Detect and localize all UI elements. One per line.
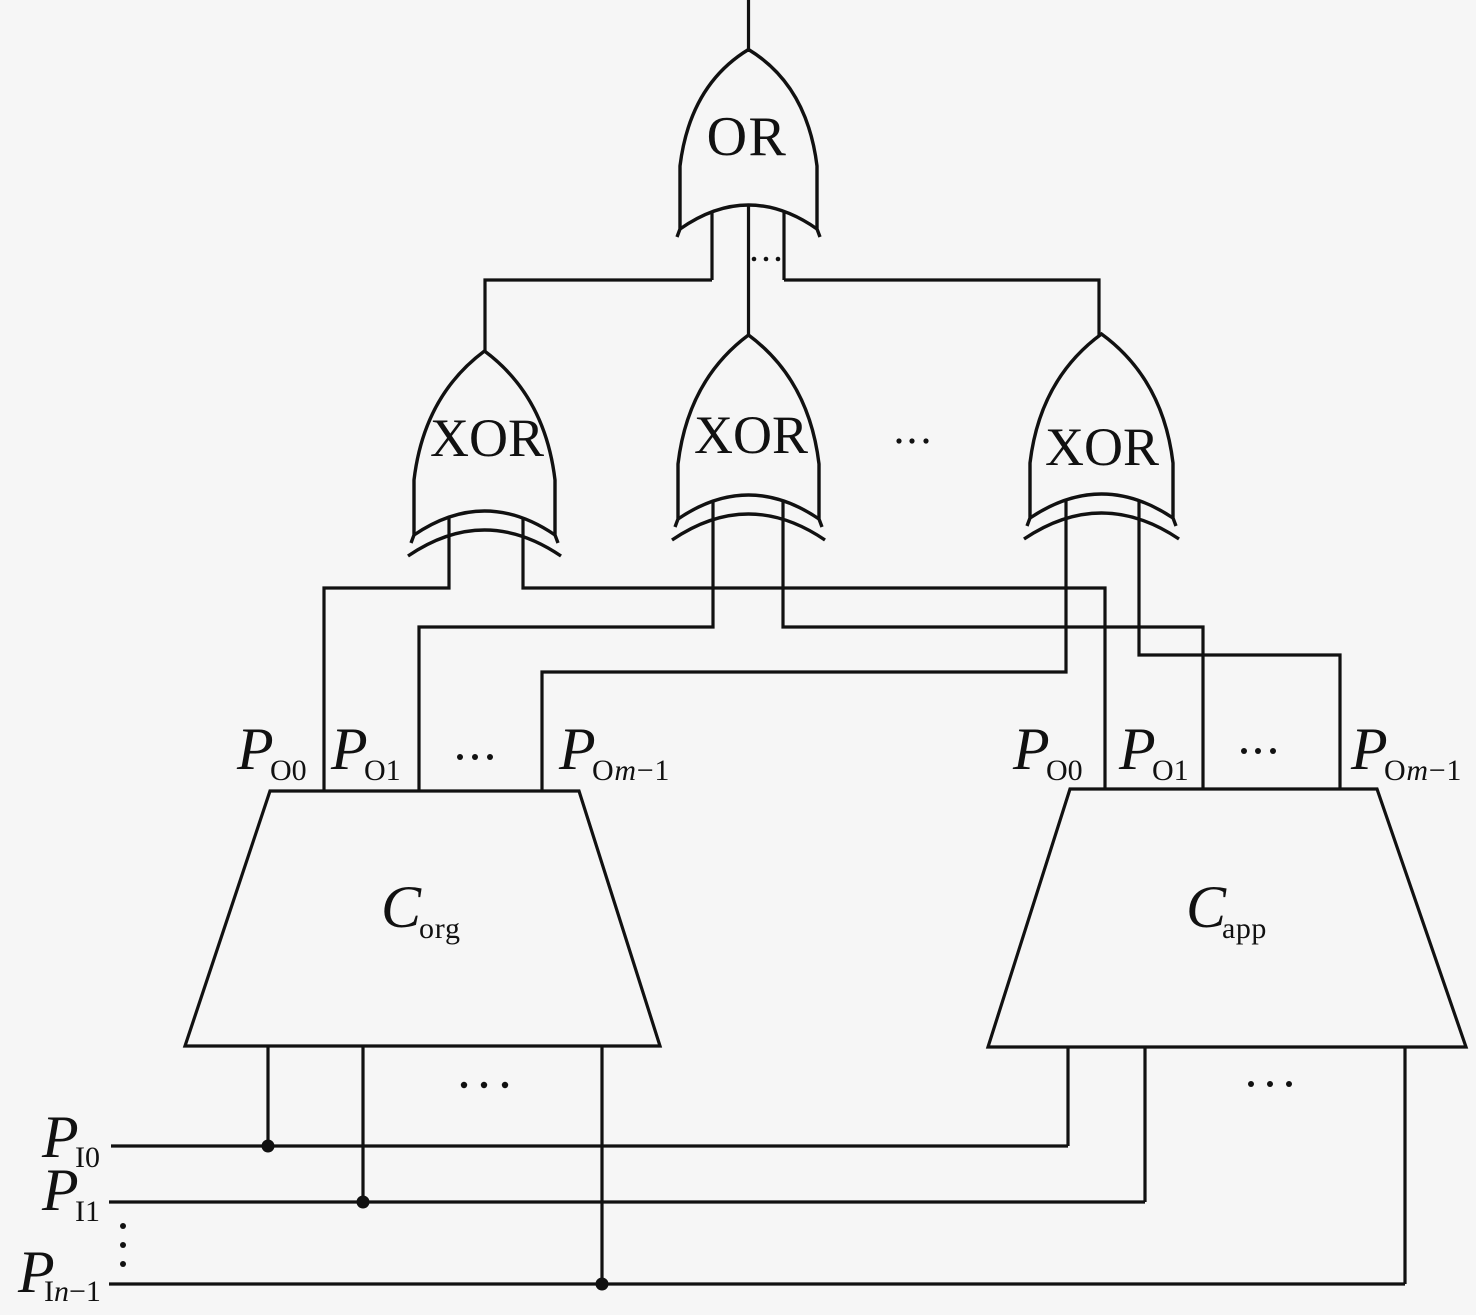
svg-text:O1: O1: [1152, 754, 1189, 787]
svg-text:O0: O0: [270, 754, 307, 787]
svg-text:Om−1: Om−1: [1384, 754, 1462, 787]
svg-text:app: app: [1222, 912, 1267, 945]
svg-text:I0: I0: [75, 1141, 100, 1174]
svg-text:XOR: XOR: [430, 408, 544, 468]
svg-text:P: P: [236, 716, 274, 782]
svg-text:org: org: [419, 912, 461, 945]
svg-text:P: P: [1118, 716, 1156, 782]
svg-text:P: P: [41, 1157, 79, 1223]
svg-text:In−1: In−1: [44, 1275, 101, 1308]
svg-text:Om−1: Om−1: [592, 754, 670, 787]
svg-text:P: P: [330, 716, 368, 782]
svg-text:P: P: [1350, 716, 1388, 782]
svg-text:P: P: [1012, 716, 1050, 782]
svg-text:I1: I1: [75, 1195, 100, 1228]
svg-text:O0: O0: [1046, 754, 1083, 787]
svg-text:C: C: [381, 874, 422, 940]
svg-text:OR: OR: [707, 106, 788, 168]
svg-text:XOR: XOR: [1045, 417, 1159, 477]
svg-text:P: P: [558, 716, 596, 782]
svg-text:O1: O1: [364, 754, 401, 787]
svg-text:C: C: [1186, 874, 1227, 940]
svg-text:XOR: XOR: [694, 405, 808, 465]
